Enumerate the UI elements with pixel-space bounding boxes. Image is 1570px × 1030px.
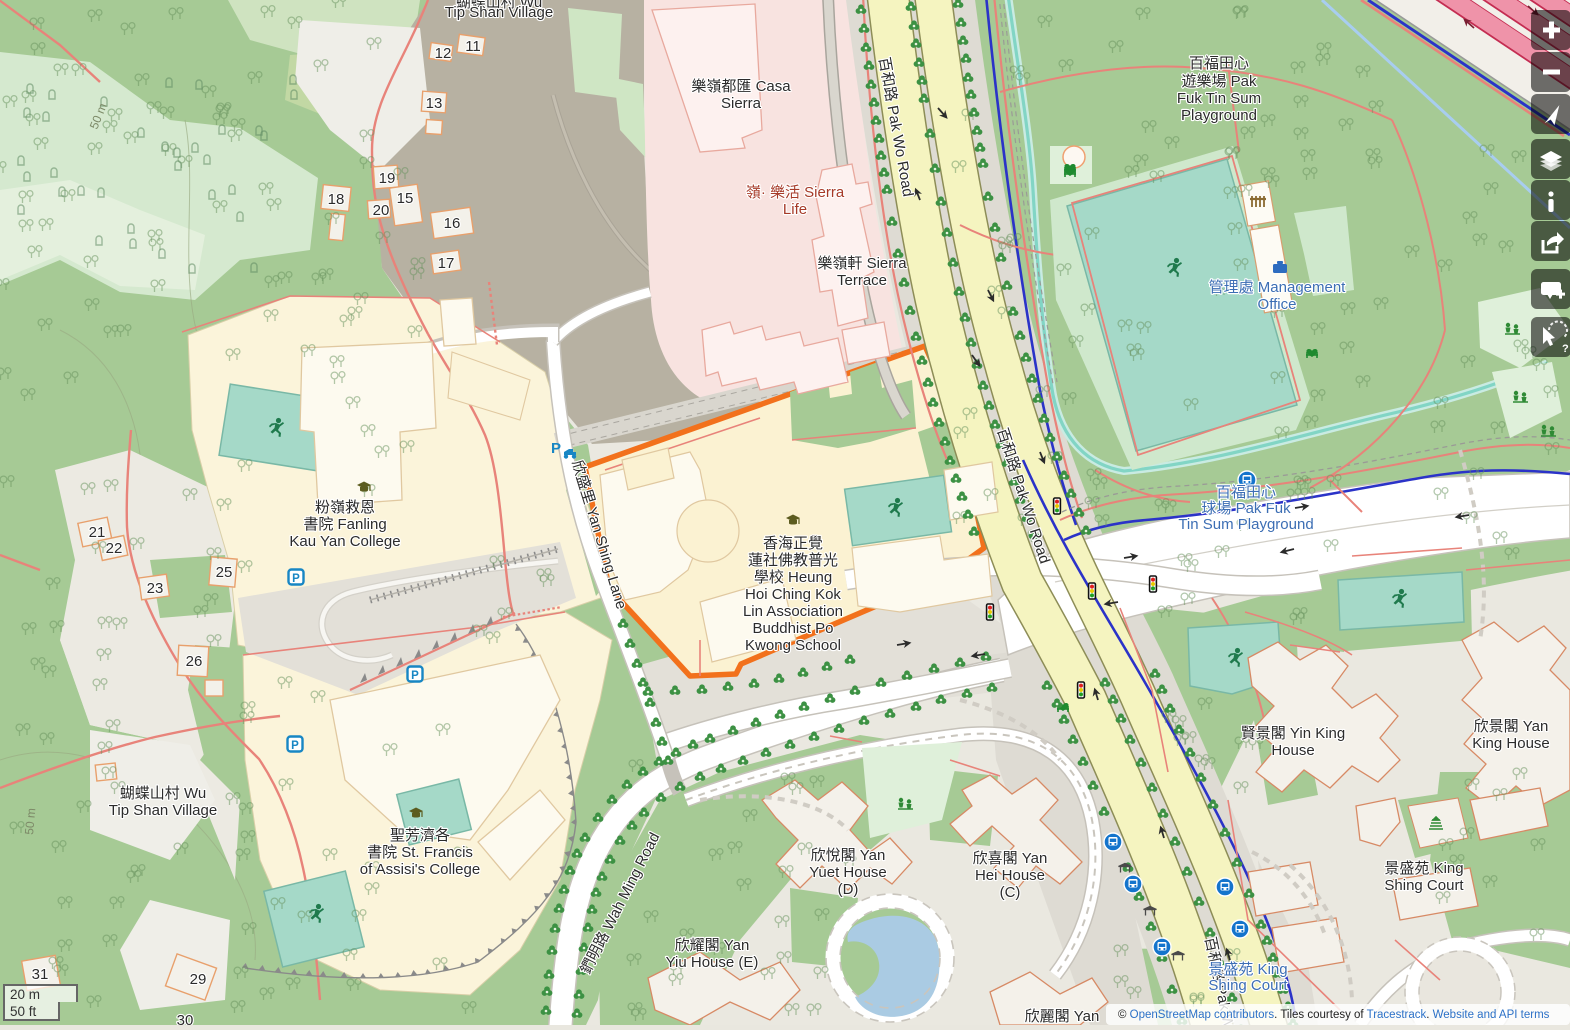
svg-text:?: ?: [1562, 343, 1569, 355]
svg-text:Terrace: Terrace: [837, 272, 887, 289]
svg-text:Yiu House (E): Yiu House (E): [666, 954, 759, 971]
svg-text:書院 Fanling: 書院 Fanling: [303, 515, 386, 533]
svg-text:12: 12: [435, 45, 452, 62]
svg-text:20: 20: [373, 202, 390, 219]
svg-text:賢景閣 Yin King: 賢景閣 Yin King: [1241, 725, 1345, 742]
svg-text:Hei House: Hei House: [975, 867, 1045, 884]
svg-text:19: 19: [379, 170, 396, 187]
svg-text:31: 31: [32, 966, 49, 983]
svg-text:Shing Court: Shing Court: [1208, 977, 1288, 994]
svg-text:P: P: [551, 440, 561, 457]
svg-text:香海正覺: 香海正覺: [763, 535, 823, 552]
svg-text:22: 22: [106, 540, 123, 557]
svg-text:Tip Shan Village: Tip Shan Village: [445, 4, 553, 21]
svg-text:欣景閣 Yan: 欣景閣 Yan: [1474, 718, 1549, 735]
svg-text:18: 18: [328, 191, 345, 208]
svg-text:21: 21: [89, 524, 106, 541]
svg-text:欣耀閣 Yan: 欣耀閣 Yan: [675, 937, 750, 954]
svg-text:球場 Pak Fuk: 球場 Pak Fuk: [1201, 500, 1291, 517]
svg-text:蝴蝶山村 Wu: 蝴蝶山村 Wu: [120, 785, 206, 802]
svg-text:樂嶺軒 Sierra: 樂嶺軒 Sierra: [817, 255, 907, 272]
svg-text:遊樂場 Pak: 遊樂場 Pak: [1181, 73, 1257, 90]
svg-text:欣悅閣 Yan: 欣悅閣 Yan: [811, 847, 886, 864]
svg-text:King House: King House: [1472, 735, 1550, 752]
svg-text:25: 25: [216, 564, 233, 581]
svg-text:50 ft: 50 ft: [10, 1004, 37, 1019]
svg-text:20 m: 20 m: [10, 987, 40, 1002]
svg-text:Sierra: Sierra: [721, 95, 762, 112]
svg-text:(C): (C): [1000, 884, 1021, 901]
svg-text:粉嶺救恩: 粉嶺救恩: [315, 499, 375, 516]
svg-text:聖芳濟各: 聖芳濟各: [390, 827, 450, 844]
svg-text:16: 16: [444, 215, 461, 232]
svg-text:30: 30: [177, 1012, 194, 1025]
svg-text:百福田心: 百福田心: [1216, 484, 1276, 501]
svg-text:House: House: [1271, 742, 1314, 759]
svg-text:Lin Association: Lin Association: [743, 603, 843, 620]
svg-text:Fuk Tin Sum: Fuk Tin Sum: [1177, 90, 1261, 107]
svg-text:嶺· 樂活 Sierra: 嶺· 樂活 Sierra: [746, 184, 845, 201]
svg-text:26: 26: [186, 653, 203, 670]
svg-text:50 m: 50 m: [22, 807, 38, 835]
svg-text:Life: Life: [783, 201, 807, 218]
svg-text:15: 15: [397, 190, 414, 207]
svg-text:(D): (D): [838, 881, 859, 898]
svg-text:11: 11: [465, 38, 481, 55]
svg-text:Buddhist Po: Buddhist Po: [753, 620, 834, 637]
svg-text:Shing Court: Shing Court: [1384, 877, 1464, 894]
svg-text:景盛苑 King: 景盛苑 King: [1384, 860, 1463, 877]
svg-text:Office: Office: [1258, 296, 1297, 313]
svg-text:Playground: Playground: [1181, 107, 1257, 124]
svg-text:Kwong School: Kwong School: [745, 637, 841, 654]
svg-text:13: 13: [426, 95, 443, 112]
svg-text:樂嶺都匯 Casa: 樂嶺都匯 Casa: [691, 78, 791, 95]
svg-text:百福田心: 百福田心: [1189, 55, 1249, 72]
svg-text:景盛苑 King: 景盛苑 King: [1208, 961, 1287, 978]
svg-text:© OpenStreetMap contributors.: © OpenStreetMap contributors. Tiles cour…: [1118, 1009, 1550, 1021]
svg-text:欣喜閣 Yan: 欣喜閣 Yan: [973, 850, 1048, 867]
svg-text:of Assisi's College: of Assisi's College: [360, 861, 480, 878]
svg-text:欣麗閣 Yan: 欣麗閣 Yan: [1025, 1008, 1100, 1025]
svg-text:管理處 Management: 管理處 Management: [1209, 279, 1347, 296]
svg-text:書院 St. Francis: 書院 St. Francis: [367, 843, 473, 861]
svg-text:Hoi Ching Kok: Hoi Ching Kok: [745, 586, 841, 603]
svg-text:Tip Shan Village: Tip Shan Village: [109, 802, 217, 819]
svg-text:17: 17: [438, 255, 455, 272]
svg-text:蓮社佛教普光: 蓮社佛教普光: [748, 552, 838, 569]
svg-text:Kau Yan College: Kau Yan College: [289, 533, 400, 550]
svg-text:Tin Sum Playground: Tin Sum Playground: [1178, 516, 1313, 533]
svg-text:29: 29: [190, 971, 207, 988]
svg-text:23: 23: [147, 580, 164, 597]
svg-text:學校 Heung: 學校 Heung: [754, 568, 832, 586]
svg-text:Yuet House: Yuet House: [809, 864, 887, 881]
